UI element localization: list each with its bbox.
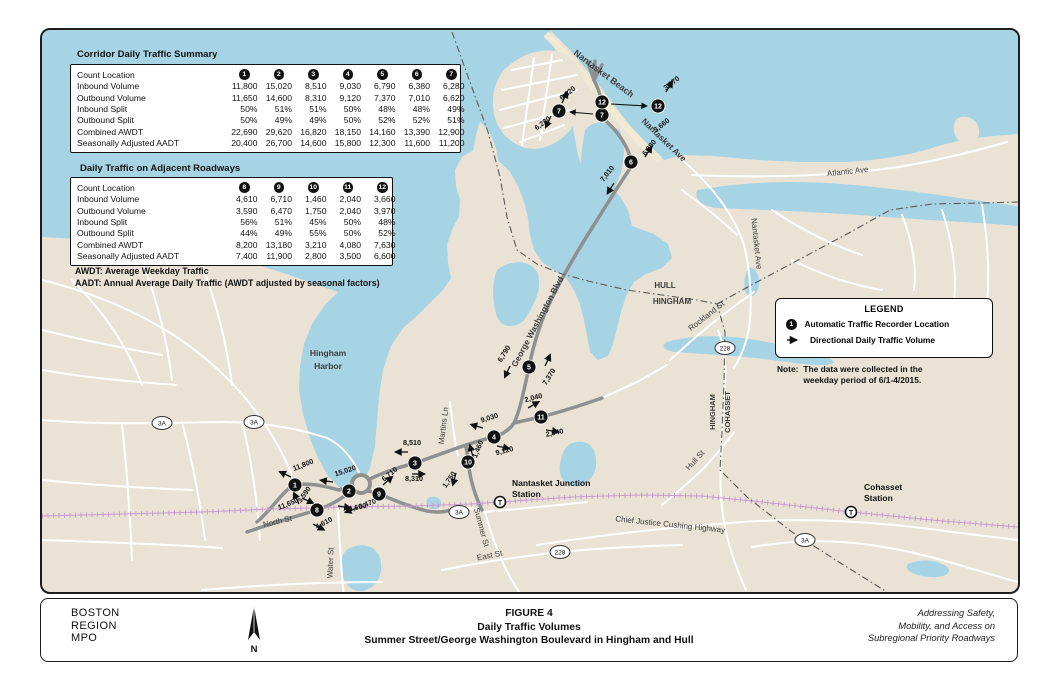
table-row: Seasonally Adjusted AADT7,40011,9002,800… — [77, 251, 387, 262]
table-cell: 2,040 — [327, 206, 362, 216]
table-row: Outbound Volume3,5906,4701,7502,0403,970 — [77, 205, 387, 216]
route-shield: 3A — [449, 506, 469, 519]
row-label: Combined AWDT — [77, 127, 223, 137]
table-cell: 11,600 — [396, 138, 431, 148]
table-header-row: Count Location89101112 — [77, 182, 387, 193]
table-cell: 8,200 — [223, 240, 258, 250]
table-cell: 44% — [223, 228, 258, 238]
table-cell: 51% — [430, 115, 465, 125]
water-body — [907, 561, 949, 578]
row-label: Inbound Split — [77, 217, 223, 227]
table-cell: 11,650 — [223, 93, 258, 103]
route-shield: 3A — [244, 416, 264, 429]
table-cell: 6,380 — [396, 81, 431, 91]
figure-page: Nantasket BeachNantasket AveNantasket Av… — [0, 0, 1056, 683]
traffic-recorder-marker: 2 — [342, 484, 356, 498]
minor-road — [772, 210, 862, 255]
svg-text:N: N — [251, 644, 258, 655]
traffic-volume-label: 8,310 — [405, 474, 423, 483]
table-cell: 7,400 — [223, 251, 258, 261]
direction-arrow-icon — [545, 354, 550, 366]
table-cell: 11,200 — [430, 138, 465, 148]
awdt-footnote: AWDT: Average Weekday Traffic — [75, 266, 209, 276]
svg-text:3A: 3A — [801, 538, 810, 545]
table-cell: 49% — [258, 228, 293, 238]
traffic-recorder-marker: 6 — [624, 155, 638, 169]
minor-road — [718, 330, 746, 590]
table-cell: 50% — [327, 228, 362, 238]
table1-title: Corridor Daily Traffic Summary — [77, 49, 217, 60]
water-body — [427, 497, 442, 510]
row-label: Inbound Volume — [77, 81, 223, 91]
table-cell: 50% — [223, 115, 258, 125]
table-cell: 52% — [396, 115, 431, 125]
count-location-marker-icon: 4 — [343, 69, 354, 80]
minor-road — [122, 425, 132, 560]
table-cell: 52% — [361, 228, 396, 238]
minor-road — [902, 215, 915, 290]
traffic-recorder-marker: 12 — [595, 95, 609, 109]
table-cell: 13,390 — [396, 127, 431, 137]
route-shield: 3A — [152, 417, 172, 430]
minor-road — [42, 480, 192, 490]
route-shield: 3A — [795, 534, 815, 547]
table-cell: 29,620 — [258, 127, 293, 137]
table-cell: 52% — [361, 115, 396, 125]
traffic-recorder-marker: 11 — [534, 410, 548, 424]
svg-text:228: 228 — [720, 346, 731, 353]
traffic-recorder-marker: 10 — [461, 455, 475, 469]
table-cell: 49% — [430, 104, 465, 114]
table-cell: 48% — [361, 217, 396, 227]
figure-number: FIGURE 4 — [364, 607, 693, 621]
water-body — [341, 545, 381, 591]
table-cell: 45% — [292, 217, 327, 227]
table-cell: 48% — [396, 104, 431, 114]
traffic-recorder-marker: 8 — [310, 503, 324, 517]
row-label: Combined AWDT — [77, 240, 223, 250]
minor-road — [792, 260, 882, 290]
table-row: Combined AWDT22,69029,62016,82018,15014,… — [77, 126, 455, 137]
road-label: Summer St — [472, 507, 491, 549]
direction-arrow-icon — [320, 480, 333, 482]
svg-text:9: 9 — [377, 492, 381, 499]
table-cell: 50% — [327, 115, 362, 125]
road-label: Atlantic Ave — [827, 165, 870, 178]
minor-road — [942, 210, 955, 300]
figure-subtitle: Summer Street/George Washington Boulevar… — [364, 634, 693, 648]
svg-text:T: T — [849, 510, 854, 517]
row-label: Seasonally Adjusted AADT — [77, 138, 223, 148]
table-cell: 51% — [258, 217, 293, 227]
table-cell: 48% — [361, 104, 396, 114]
svg-text:228: 228 — [555, 550, 566, 557]
station-label: Station — [864, 493, 893, 503]
note-label: Note: — [777, 364, 798, 386]
north-arrow-icon: N — [239, 602, 269, 658]
road-label: Nantasket Ave — [749, 218, 763, 271]
traffic-recorder-marker: 9 — [372, 487, 386, 501]
table-cell: 13,180 — [258, 240, 293, 250]
traffic-volume-label: 7,370 — [540, 367, 557, 387]
row-header-label: Count Location — [77, 70, 223, 80]
mbta-station: TCohassetStation — [846, 482, 903, 518]
table-row: Inbound Volume11,80015,0208,5109,0306,79… — [77, 80, 455, 91]
traffic-volume-label: 11,800 — [291, 456, 314, 472]
traffic-recorder-marker: 4 — [487, 430, 501, 444]
table-cell: 7,010 — [396, 93, 431, 103]
svg-text:10: 10 — [464, 460, 472, 467]
table-cell: 50% — [327, 217, 362, 227]
road-label: North St — [262, 514, 293, 530]
row-label: Outbound Split — [77, 228, 223, 238]
traffic-volume-label: 2,040 — [523, 391, 543, 404]
minor-road — [42, 280, 292, 475]
table-cell: 22,690 — [223, 127, 258, 137]
svg-text:3: 3 — [413, 461, 417, 468]
svg-text:1: 1 — [293, 483, 297, 490]
table-cell: 15,020 — [258, 81, 293, 91]
table-row: Outbound Split50%49%49%50%52%52%51% — [77, 115, 455, 126]
table-cell: 9,030 — [327, 81, 362, 91]
table-row: Inbound Volume4,6106,7101,4602,0403,660 — [77, 193, 387, 204]
table-cell: 51% — [292, 104, 327, 114]
table-cell: 7,370 — [361, 93, 396, 103]
table-cell: 2,040 — [327, 194, 362, 204]
road-label: Hingham — [310, 348, 347, 358]
table-row: Inbound Split50%51%51%50%48%48%49% — [77, 103, 455, 114]
road-label: Water St — [325, 547, 335, 579]
count-location-marker-icon: 1 — [239, 69, 250, 80]
svg-text:8: 8 — [315, 508, 319, 515]
table-cell: 49% — [292, 115, 327, 125]
svg-text:3A: 3A — [250, 420, 259, 427]
row-header-label: Count Location — [77, 183, 223, 193]
row-label: Outbound Split — [77, 115, 223, 125]
svg-text:6: 6 — [629, 160, 633, 167]
count-location-marker-icon: 11 — [343, 182, 354, 193]
traffic-recorder-marker: 12 — [651, 99, 665, 113]
count-location-marker-icon: 8 — [239, 182, 250, 193]
table-cell: 50% — [327, 104, 362, 114]
svg-text:4: 4 — [492, 435, 496, 442]
table-cell: 6,710 — [258, 194, 293, 204]
table-cell: 6,620 — [430, 93, 465, 103]
traffic-recorder-marker: 7 — [552, 104, 566, 118]
table-cell: 3,590 — [223, 206, 258, 216]
row-label: Outbound Volume — [77, 93, 223, 103]
legend: LEGEND 1 Automatic Traffic Recorder Loca… — [775, 298, 993, 358]
legend-note: Note: The data were collected in the wee… — [777, 364, 923, 386]
count-location-marker-icon: 7 — [446, 69, 457, 80]
table-cell: 20,400 — [223, 138, 258, 148]
row-label: Seasonally Adjusted AADT — [77, 251, 223, 261]
table-row: Inbound Split56%51%45%50%48% — [77, 216, 387, 227]
table-cell: 3,660 — [361, 194, 396, 204]
traffic-recorder-marker-icon: 1 — [786, 319, 797, 330]
table-header-row: Count Location1234567 — [77, 69, 455, 80]
table-row: Seasonally Adjusted AADT20,40026,70014,6… — [77, 138, 455, 149]
table-cell: 14,160 — [361, 127, 396, 137]
table-cell: 4,080 — [327, 240, 362, 250]
table-cell: 8,510 — [292, 81, 327, 91]
station-label: Nantasket Junction — [512, 478, 590, 488]
count-location-marker-icon: 12 — [377, 182, 388, 193]
table-cell: 50% — [223, 104, 258, 114]
legend-title: LEGEND — [776, 304, 992, 314]
table-cell: 26,700 — [258, 138, 293, 148]
legend-item-arrow-label: Directional Daily Traffic Volume — [810, 335, 935, 345]
legend-item-recorder-label: Automatic Traffic Recorder Location — [805, 319, 950, 329]
table-cell: 1,460 — [292, 194, 327, 204]
agency-name: BOSTON REGION MPO — [71, 607, 120, 645]
direction-arrow-icon — [786, 336, 802, 344]
figure-footer: BOSTON REGION MPO N FIGURE 4 Daily Traff… — [40, 598, 1018, 662]
count-location-marker-icon: 10 — [308, 182, 319, 193]
minor-road — [537, 520, 1018, 545]
road-label: Harbor — [314, 361, 343, 371]
count-location-marker-icon: 3 — [308, 69, 319, 80]
svg-text:12: 12 — [598, 100, 606, 107]
svg-text:3A: 3A — [158, 421, 167, 428]
table-cell: 11,800 — [223, 81, 258, 91]
table-cell: 1,750 — [292, 206, 327, 216]
figure-title: Daily Traffic Volumes — [364, 621, 693, 635]
svg-text:5: 5 — [527, 365, 531, 372]
minor-road — [72, 280, 142, 385]
note-text: The data were collected in the weekday p… — [803, 364, 922, 386]
station-label: Station — [512, 489, 541, 499]
svg-text:2: 2 — [347, 489, 351, 496]
table-cell: 49% — [258, 115, 293, 125]
row-label: Inbound Volume — [77, 194, 223, 204]
route-shield: 228 — [715, 342, 735, 355]
table-cell: 15,800 — [327, 138, 362, 148]
minor-road — [662, 432, 734, 505]
map-frame: Nantasket BeachNantasket AveNantasket Av… — [40, 28, 1020, 594]
minor-road — [42, 370, 177, 385]
table-cell: 12,900 — [430, 127, 465, 137]
svg-text:T: T — [498, 500, 503, 507]
table-cell: 14,600 — [292, 138, 327, 148]
station-label: Cohasset — [864, 482, 902, 492]
table-cell: 3,210 — [292, 240, 327, 250]
table-cell: 18,150 — [327, 127, 362, 137]
table-row: Outbound Volume11,65014,6008,3109,1207,3… — [77, 92, 455, 103]
row-label: Inbound Split — [77, 104, 223, 114]
traffic-volume-label: 1,750 — [440, 470, 458, 490]
count-location-marker-icon: 6 — [412, 69, 423, 80]
minor-road — [752, 541, 1018, 582]
corridor-summary-table: Count Location1234567Inbound Volume11,80… — [70, 64, 461, 153]
table-cell: 56% — [223, 217, 258, 227]
table-cell: 2,800 — [292, 251, 327, 261]
water-body — [493, 262, 539, 326]
road-label: HINGHAM — [708, 394, 717, 430]
count-location-marker-icon: 9 — [274, 182, 285, 193]
svg-text:12: 12 — [654, 104, 662, 111]
table-cell: 16,820 — [292, 127, 327, 137]
table-cell: 6,280 — [430, 81, 465, 91]
count-location-marker-icon: 2 — [274, 69, 285, 80]
traffic-recorder-marker: 5 — [522, 360, 536, 374]
table-cell: 11,900 — [258, 251, 293, 261]
count-location-marker-icon: 5 — [377, 69, 388, 80]
program-tagline: Addressing Safety, Mobility, and Access … — [868, 607, 995, 645]
road-label: HINGHAM — [653, 297, 692, 306]
table2-title: Daily Traffic on Adjacent Roadways — [80, 163, 240, 174]
direction-arrow-icon — [505, 366, 510, 378]
traffic-recorder-marker: 7 — [595, 108, 609, 122]
table-cell: 3,500 — [327, 251, 362, 261]
table-cell: 55% — [292, 228, 327, 238]
table-cell: 7,630 — [361, 240, 396, 250]
aadt-footnote: AADT: Annual Average Daily Traffic (AWDT… — [75, 278, 380, 288]
table-cell: 8,310 — [292, 93, 327, 103]
svg-text:11: 11 — [537, 415, 545, 422]
table-cell: 51% — [258, 104, 293, 114]
direction-arrow-icon — [279, 472, 291, 477]
road-label: COHASSET — [723, 391, 732, 433]
traffic-recorder-marker: 1 — [288, 478, 302, 492]
figure-title-block: FIGURE 4 Daily Traffic Volumes Summer St… — [364, 607, 693, 648]
table-cell: 6,470 — [258, 206, 293, 216]
table-cell: 14,600 — [258, 93, 293, 103]
water-body — [696, 182, 1018, 226]
table-cell: 6,790 — [361, 81, 396, 91]
svg-text:7: 7 — [600, 113, 604, 120]
row-label: Outbound Volume — [77, 206, 223, 216]
route-shield: 228 — [550, 546, 570, 559]
svg-text:3A: 3A — [455, 510, 464, 517]
table-cell: 12,300 — [361, 138, 396, 148]
traffic-volume-label: 2,040 — [545, 426, 564, 439]
road-label: HULL — [654, 281, 675, 290]
minor-road — [602, 365, 667, 398]
table-row: Combined AWDT8,20013,1803,2104,0807,630 — [77, 239, 387, 250]
minor-road — [182, 422, 205, 540]
table-cell: 6,600 — [361, 251, 396, 261]
road-label: Martins Ln — [437, 407, 450, 445]
traffic-volume-label: 9,030 — [479, 411, 499, 425]
svg-text:7: 7 — [557, 109, 561, 116]
table-cell: 4,610 — [223, 194, 258, 204]
adjacent-roadways-table: Count Location89101112Inbound Volume4,61… — [70, 177, 393, 266]
table-cell: 9,120 — [327, 93, 362, 103]
table-row: Outbound Split44%49%55%50%52% — [77, 228, 387, 239]
traffic-recorder-marker: 3 — [408, 456, 422, 470]
table-cell: 3,970 — [361, 206, 396, 216]
minor-road — [42, 330, 162, 355]
traffic-volume-label: 8,510 — [403, 438, 421, 447]
